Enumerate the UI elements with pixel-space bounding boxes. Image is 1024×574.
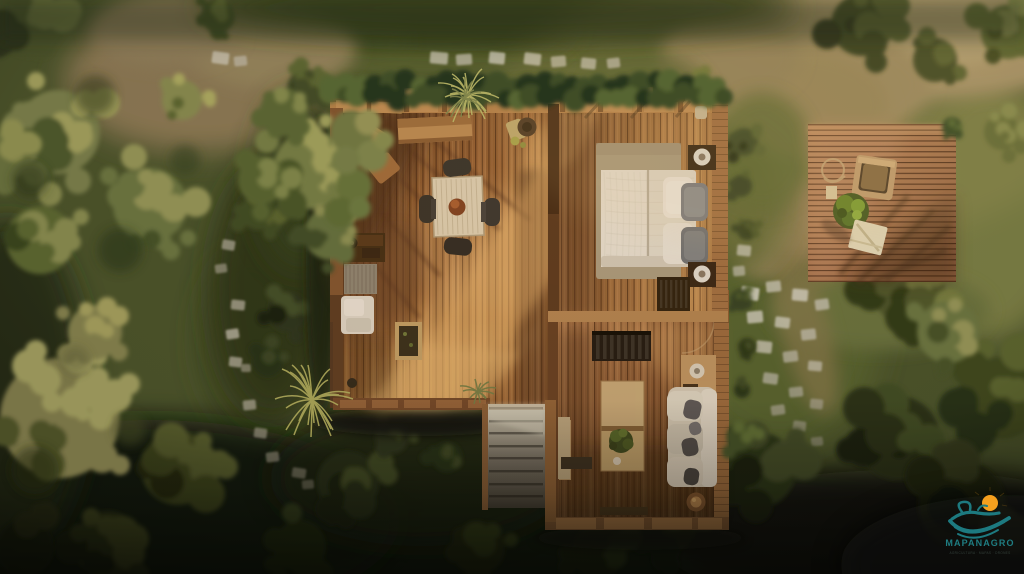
- svg-text:MAPANAGRO: MAPANAGRO: [945, 538, 1014, 548]
- svg-text:AGRICULTURA · MAPAS · DRONES: AGRICULTURA · MAPAS · DRONES: [949, 551, 1010, 555]
